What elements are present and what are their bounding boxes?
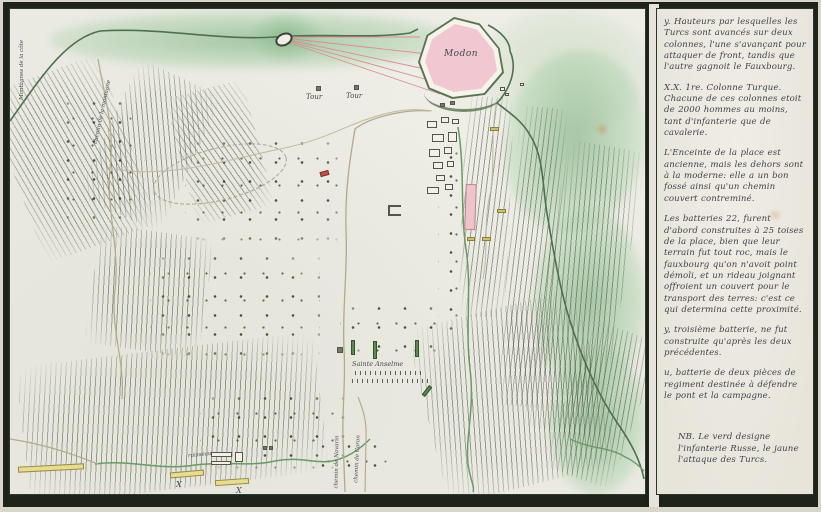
tower-icon: [316, 86, 321, 91]
building: [440, 103, 445, 107]
trench-work: [464, 184, 477, 230]
legend-paragraph: X.X. 1re. Colonne Turque. Chacune de ces…: [664, 83, 806, 140]
legend-paragraph: L'Enceinte de la place est ancienne, mai…: [664, 148, 806, 205]
tower-label: Tour: [306, 93, 322, 101]
tower-icon: [354, 85, 359, 90]
camp-ticks: [355, 371, 425, 375]
building: [427, 187, 439, 194]
fortress-label: Modon: [428, 49, 494, 59]
russian-infantry-bar: [351, 340, 355, 355]
building: [211, 452, 232, 457]
legend-paragraph: y, troisième batterie, ne fut construite…: [664, 325, 806, 359]
column-label: X: [176, 480, 182, 489]
map-scan: Modon Tour Tour: [0, 0, 821, 512]
battery-icon: [482, 237, 491, 241]
building: [211, 461, 231, 465]
building: [505, 93, 509, 96]
column-label: X: [236, 486, 242, 494]
building: [447, 161, 454, 167]
building: [452, 119, 459, 124]
paper-stain: [767, 209, 783, 221]
legend-paragraph: y. Hauteurs par lesquelles les Turcs son…: [664, 17, 806, 74]
building: [433, 162, 443, 169]
building: [520, 83, 524, 86]
building: [429, 149, 440, 157]
building: [441, 117, 449, 123]
building: [448, 132, 457, 142]
battery-icon: [490, 127, 499, 131]
building: [263, 446, 267, 450]
legend-paragraph: Les batteries 22, furent d'abord constru…: [664, 214, 806, 316]
building: [436, 175, 445, 181]
building: [500, 87, 505, 91]
legend-text: y. Hauteurs par lesquelles les Turcs son…: [664, 17, 806, 486]
paper-stain: [595, 124, 609, 135]
legend-paragraph: u, batterie de deux pièces de regiment d…: [664, 368, 806, 402]
tower-label: Tour: [346, 92, 362, 100]
building: [444, 147, 452, 154]
russian-infantry-bar: [415, 340, 419, 357]
building: [235, 452, 243, 462]
building: [269, 446, 273, 450]
camp-ticks: [352, 379, 430, 383]
building-open-court: [388, 205, 401, 216]
legend-panel: y. Hauteurs par lesquelles les Turcs son…: [657, 9, 813, 494]
battery-icon: [497, 209, 506, 213]
legend-nota-bene: NB. Le verd designe l'infanterie Russe, …: [664, 432, 806, 466]
church-label: Sainte Anselme: [352, 360, 403, 368]
road-label: chemin de Navarin: [333, 432, 340, 492]
building: [427, 121, 437, 128]
map-sheet: Modon Tour Tour: [10, 9, 645, 494]
battery-icon: [467, 237, 475, 241]
russian-infantry-bar: [373, 341, 377, 359]
coast-mountains-label: Montagnes de la côte: [19, 20, 25, 120]
building: [432, 134, 444, 142]
building: [450, 101, 455, 105]
building: [445, 184, 453, 190]
building: [337, 347, 343, 353]
